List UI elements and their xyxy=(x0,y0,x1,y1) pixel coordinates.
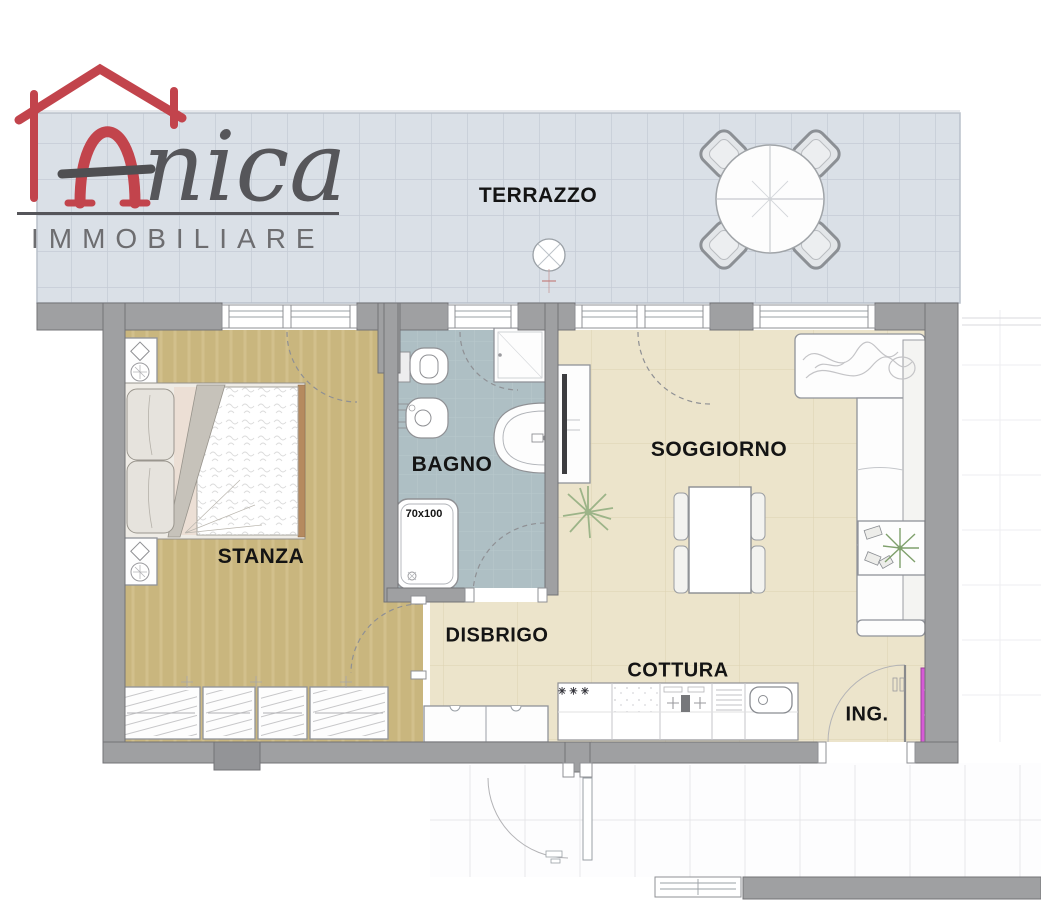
tv xyxy=(562,374,567,474)
dining-chair xyxy=(674,546,688,593)
window xyxy=(448,305,518,328)
bath-cabinet xyxy=(494,328,546,382)
logo-name-rest: nica xyxy=(143,111,347,223)
kitchen-counter xyxy=(558,683,798,740)
dining-chair xyxy=(751,546,765,593)
pillow xyxy=(127,461,174,533)
terrace-table-set xyxy=(697,127,843,272)
side-table xyxy=(858,521,925,575)
window xyxy=(575,305,710,328)
tv-cabinet xyxy=(556,365,590,483)
nightstand xyxy=(123,338,157,385)
bed xyxy=(117,383,305,539)
toilet-icon xyxy=(398,348,448,384)
logo-letter-a xyxy=(62,132,151,203)
hall-closet xyxy=(424,706,548,742)
nightstand xyxy=(123,538,157,585)
stair-landing xyxy=(430,763,1041,877)
window xyxy=(753,305,875,328)
window xyxy=(222,305,357,328)
pillow xyxy=(127,389,174,460)
dining-table xyxy=(689,487,751,593)
dining-chair xyxy=(751,493,765,540)
logo-subtitle: IMMOBILIARE xyxy=(31,223,325,254)
neighbour-window-lines xyxy=(962,318,1041,325)
shower-tray xyxy=(396,499,458,589)
window xyxy=(655,877,741,897)
dining-chair xyxy=(674,493,688,540)
agency-logo: nica IMMOBILIARE xyxy=(5,50,350,260)
floor-plan-page: TERRAZZO STANZA BAGNO 70x100 SOGGIORNO D… xyxy=(0,0,1041,900)
logo-underline xyxy=(17,212,339,215)
neighbour-area-grid xyxy=(962,310,1041,742)
